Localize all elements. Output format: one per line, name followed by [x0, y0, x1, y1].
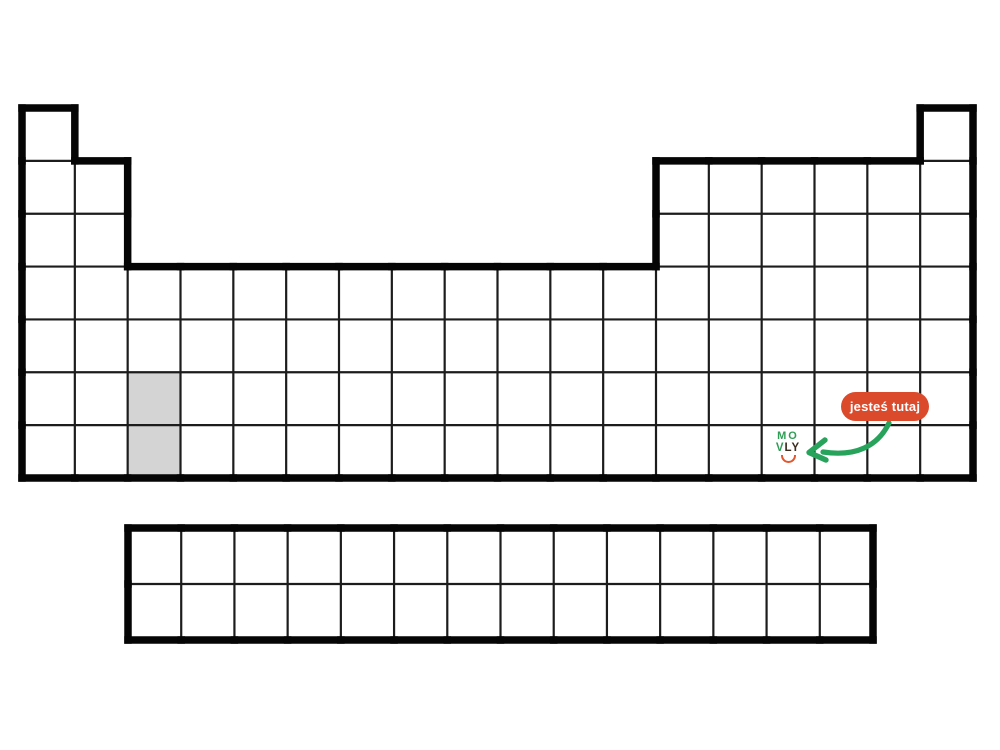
you-are-here-label: jesteś tutaj: [850, 399, 920, 414]
page-canvas: jesteś tutaj MO VLY: [0, 0, 1000, 750]
movly-logo-smile-icon: [781, 455, 796, 463]
you-are-here-badge: jesteś tutaj: [841, 392, 929, 421]
movly-logo: MO VLY: [766, 431, 810, 463]
movly-logo-v: V: [776, 442, 785, 454]
here-arrow: [0, 0, 1000, 750]
movly-logo-line2: VLY: [766, 443, 810, 455]
here-arrow-curve: [823, 423, 889, 453]
movly-logo-ly: LY: [785, 442, 801, 454]
